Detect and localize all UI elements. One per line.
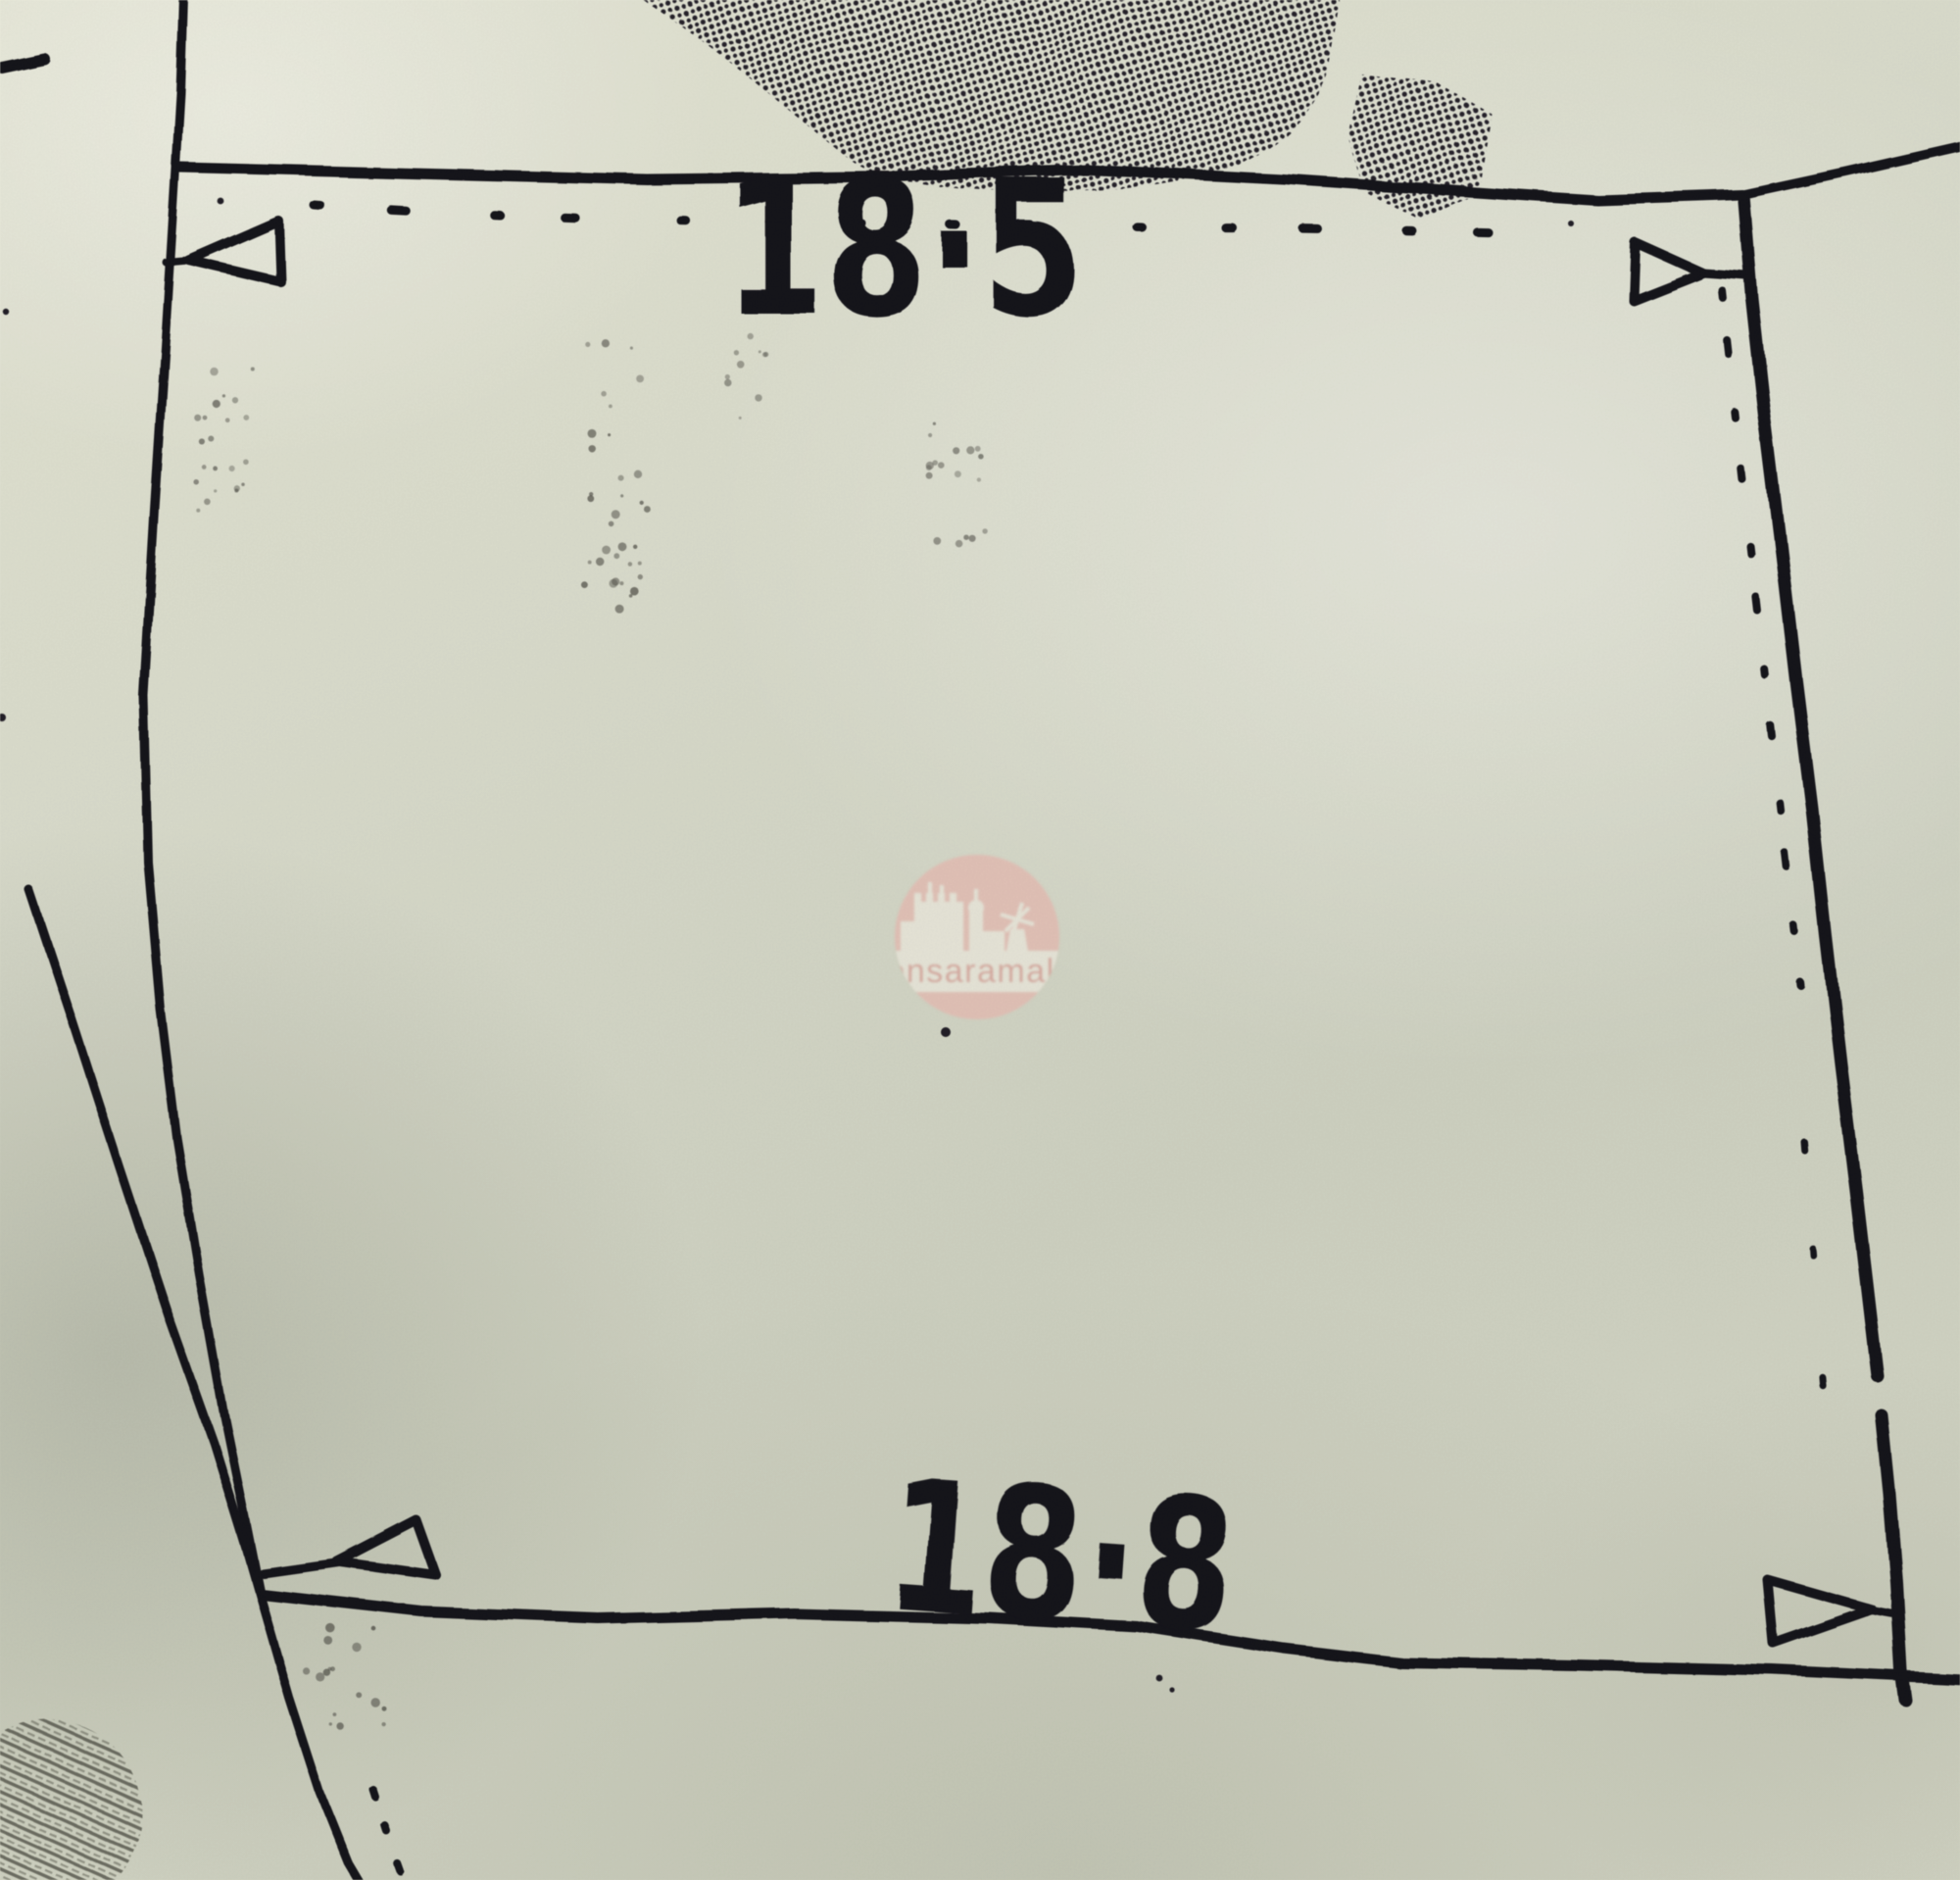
paper-grain-overlay: [0, 0, 1960, 1880]
scanned-paper: 18·5 18·8: [0, 0, 1960, 1880]
scanned-site-plan-page: { "plan": { "top_dimension_label": "18·5…: [0, 0, 1960, 1880]
site-plan-drawing: 18·5 18·8: [0, 0, 1960, 1880]
